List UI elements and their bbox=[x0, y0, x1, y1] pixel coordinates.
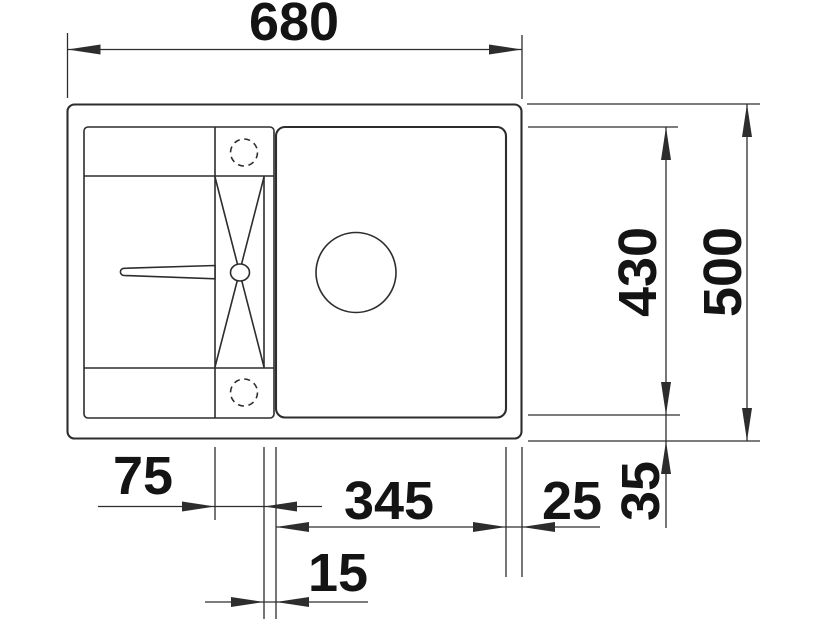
arrow-15-right bbox=[276, 597, 309, 607]
extension-lines bbox=[68, 33, 761, 619]
arrow-430-top bbox=[661, 127, 671, 160]
arrow-680-left bbox=[68, 45, 101, 55]
bowl-outline bbox=[276, 127, 506, 418]
arrow-345-left bbox=[276, 522, 309, 532]
arrow-500-bottom bbox=[742, 408, 752, 441]
channel-center-hub bbox=[231, 264, 250, 281]
arrow-15-left bbox=[231, 597, 264, 607]
bowl-right-offset-label: 25 bbox=[542, 471, 602, 531]
arrow-680-right bbox=[489, 45, 522, 55]
drawing-canvas: 680 500 430 75 345 25 35 15 bbox=[0, 0, 826, 620]
overall-width-label: 680 bbox=[249, 0, 339, 52]
arrow-430-bottom bbox=[661, 382, 671, 415]
arrow-500-top bbox=[742, 104, 752, 137]
sink-dimension-drawing: 680 500 430 75 345 25 35 15 bbox=[0, 0, 826, 620]
tap-hole-bottom bbox=[231, 379, 258, 406]
drain-groove-wedge bbox=[120, 266, 215, 279]
dimension-labels: 680 500 430 75 345 25 35 15 bbox=[113, 0, 753, 603]
inner-depth-label: 430 bbox=[608, 227, 668, 317]
arrow-345-right bbox=[473, 522, 506, 532]
arrow-75-left bbox=[182, 502, 215, 512]
arrow-75-right bbox=[264, 502, 297, 512]
bowl-bottom-offset-label: 35 bbox=[611, 461, 671, 521]
overall-depth-label: 500 bbox=[693, 227, 753, 317]
tap-hole-top bbox=[231, 139, 258, 166]
bowl-drain-circle bbox=[316, 233, 396, 313]
bowl-width-label: 345 bbox=[344, 471, 434, 531]
sink-plan-view bbox=[68, 105, 522, 439]
divider-width-label: 15 bbox=[308, 543, 368, 603]
channel-width-label: 75 bbox=[113, 446, 173, 506]
